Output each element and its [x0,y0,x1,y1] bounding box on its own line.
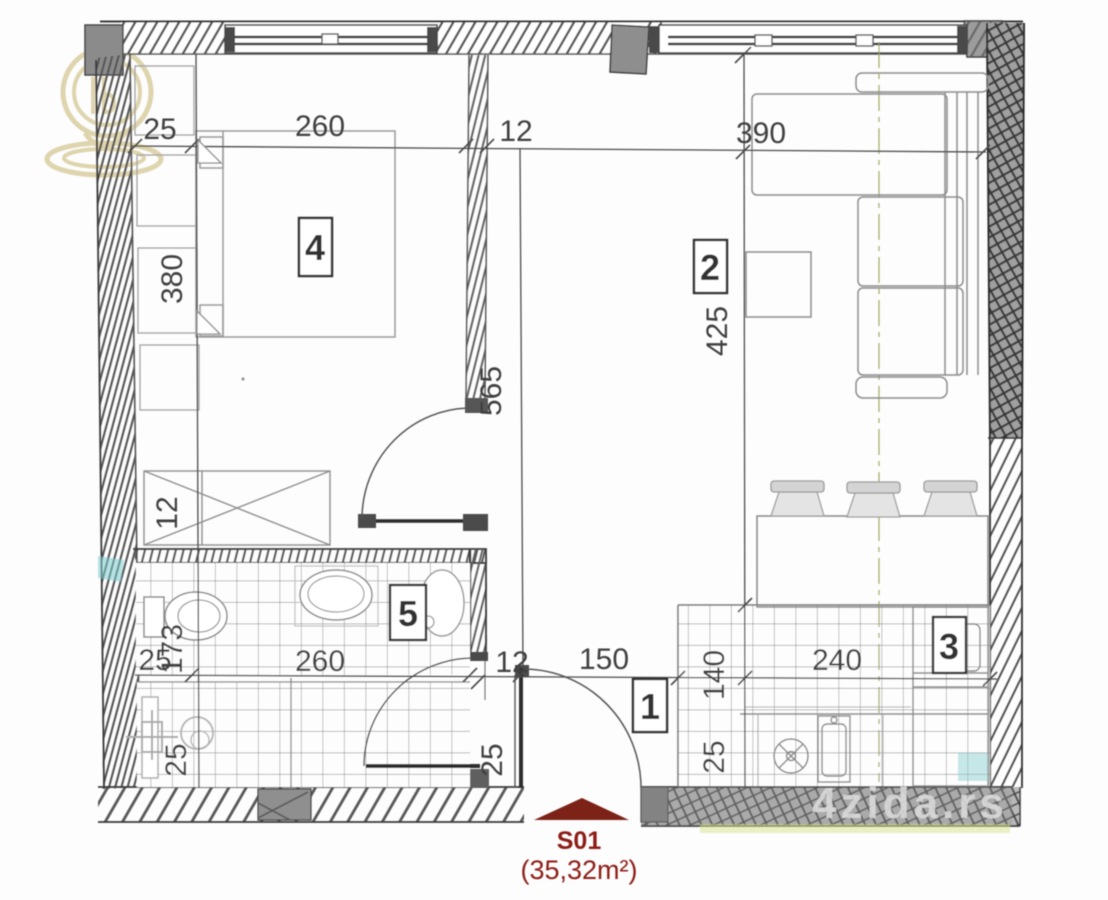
svg-text:260: 260 [295,110,345,143]
svg-text:390: 390 [736,117,786,150]
svg-text:25: 25 [698,740,731,773]
svg-text:3: 3 [939,626,959,667]
svg-text:1: 1 [640,686,660,727]
svg-text:5: 5 [398,593,418,634]
svg-text:240: 240 [812,644,862,677]
svg-text:150: 150 [579,643,629,676]
svg-text:(35,32m²): (35,32m²) [520,855,637,885]
svg-text:12: 12 [495,646,528,679]
svg-text:140: 140 [698,650,731,700]
svg-text:S01: S01 [557,827,602,855]
svg-text:25: 25 [160,743,193,776]
svg-text:173: 173 [156,624,189,674]
svg-text:4: 4 [305,227,325,268]
svg-text:4zida.rs: 4zida.rs [812,779,1008,828]
svg-text:260: 260 [295,645,345,678]
svg-text:2: 2 [700,247,720,288]
svg-text:565: 565 [475,366,508,416]
svg-text:25: 25 [143,113,176,146]
svg-text:380: 380 [156,254,189,304]
svg-text:25: 25 [476,743,509,776]
svg-text:425: 425 [701,306,734,356]
svg-text:12: 12 [151,496,184,529]
svg-text:12: 12 [499,115,532,148]
